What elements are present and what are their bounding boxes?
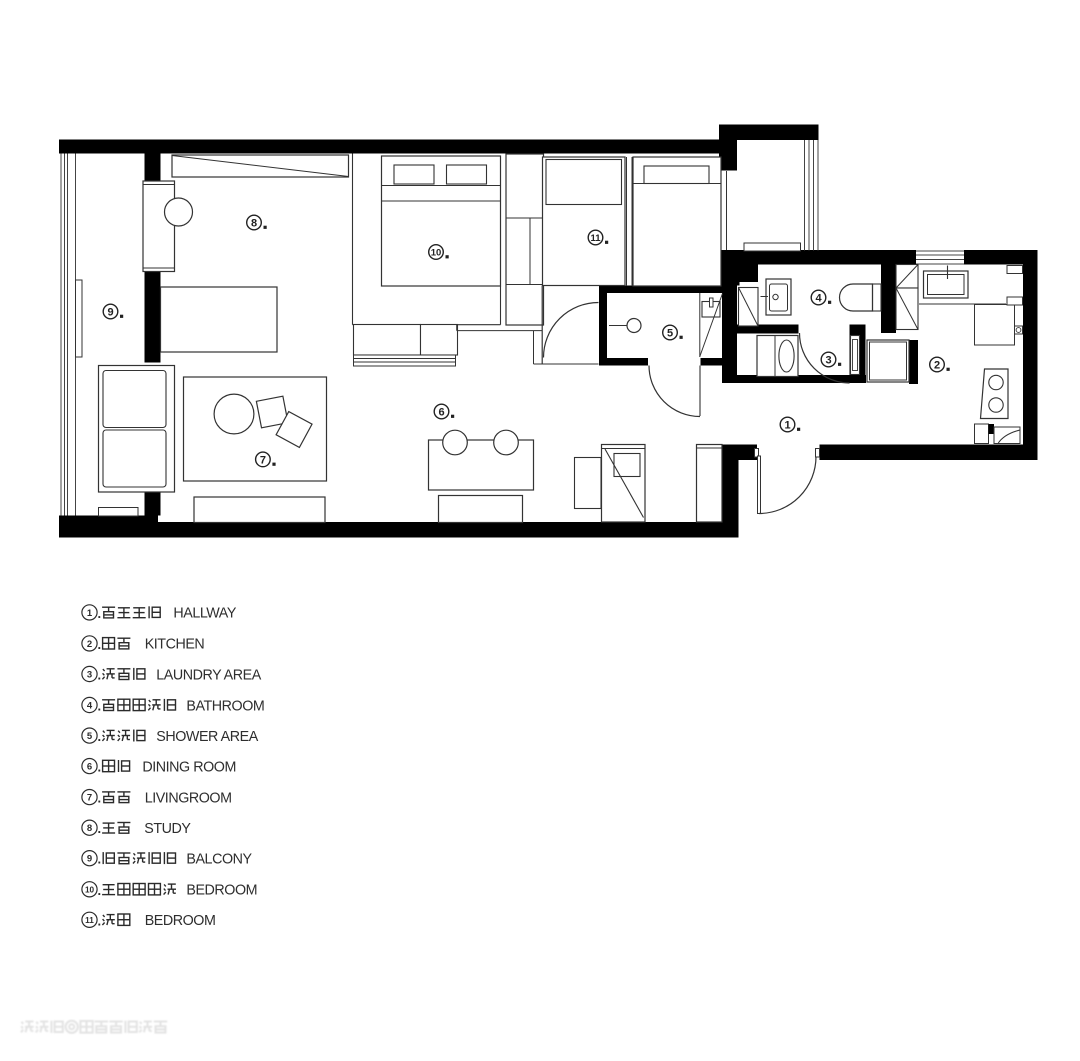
svg-text:2: 2	[87, 639, 92, 650]
svg-text:DINING ROOM: DINING ROOM	[142, 759, 236, 775]
svg-text:.: .	[98, 760, 102, 775]
svg-text:5: 5	[667, 327, 673, 339]
svg-text:LIVINGROOM: LIVINGROOM	[145, 790, 232, 806]
svg-text:2: 2	[934, 359, 940, 371]
svg-text:4: 4	[815, 292, 822, 304]
svg-text:11: 11	[590, 233, 601, 244]
svg-text:.: .	[98, 729, 102, 744]
svg-text:3: 3	[87, 669, 92, 680]
svg-text:10: 10	[85, 885, 95, 894]
svg-text:.: .	[98, 883, 102, 898]
svg-text:BATHROOM: BATHROOM	[186, 698, 264, 714]
svg-text:.: .	[98, 606, 102, 621]
svg-text:.: .	[98, 852, 102, 867]
svg-text:SHOWER AREA: SHOWER AREA	[156, 729, 258, 745]
svg-text:10: 10	[431, 247, 442, 258]
svg-text:STUDY: STUDY	[144, 821, 191, 837]
svg-text:BEDROOM: BEDROOM	[186, 883, 257, 899]
svg-text:8: 8	[87, 823, 92, 834]
svg-text:9: 9	[107, 306, 113, 318]
svg-text:8: 8	[251, 217, 257, 229]
svg-text:.: .	[98, 913, 102, 928]
svg-text:1: 1	[87, 608, 93, 619]
svg-text:3: 3	[825, 354, 831, 366]
svg-text:.: .	[98, 637, 102, 652]
svg-text:BALCONY: BALCONY	[186, 852, 252, 868]
svg-text:11: 11	[85, 916, 94, 925]
svg-text:5: 5	[87, 731, 93, 742]
svg-text:KITCHEN: KITCHEN	[145, 637, 205, 653]
svg-text:4: 4	[87, 700, 93, 711]
svg-text:6: 6	[87, 762, 92, 773]
svg-text:6: 6	[438, 406, 444, 418]
svg-text:7: 7	[87, 793, 92, 804]
svg-text:HALLWAY: HALLWAY	[173, 606, 236, 622]
svg-text:LAUNDRY AREA: LAUNDRY AREA	[156, 667, 261, 683]
svg-text:BEDROOM: BEDROOM	[145, 913, 216, 929]
svg-text:9: 9	[87, 854, 92, 865]
svg-text:.: .	[98, 821, 102, 836]
svg-text:.: .	[98, 791, 102, 806]
svg-text:.: .	[98, 668, 102, 683]
svg-text:.: .	[98, 699, 102, 714]
svg-text:1: 1	[784, 419, 790, 431]
svg-text:7: 7	[260, 454, 266, 466]
